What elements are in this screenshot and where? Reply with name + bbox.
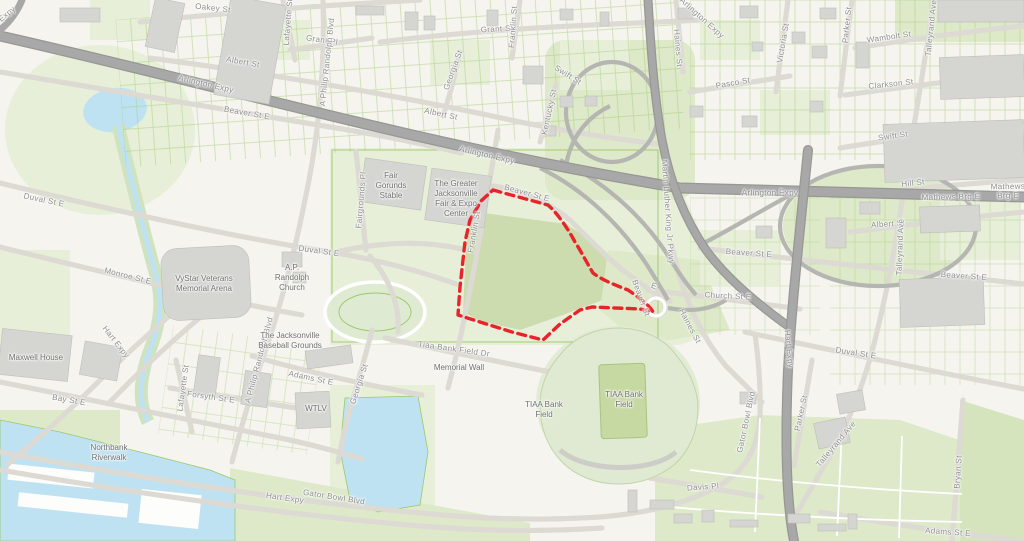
map-graphics xyxy=(0,0,1024,541)
stadium-field xyxy=(599,363,648,439)
map-canvas[interactable]: ExpyOakey StGrant PlGrant StAlbert StAlb… xyxy=(0,0,1024,541)
fairground-track xyxy=(325,282,425,342)
